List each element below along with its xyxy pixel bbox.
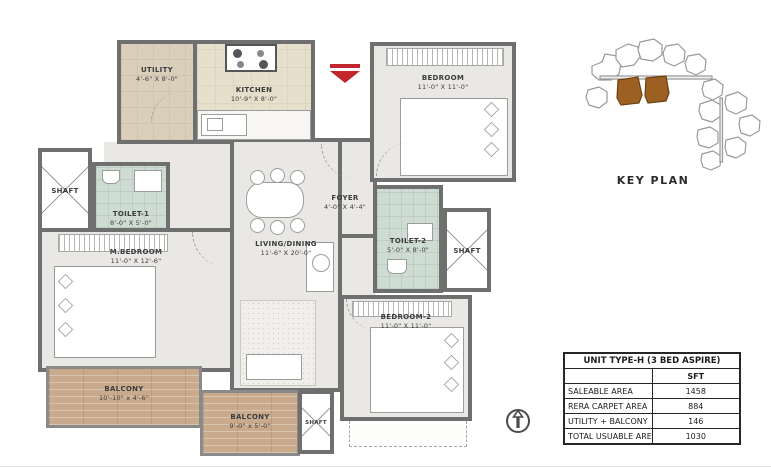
room-foyer-label: FOYER bbox=[317, 194, 373, 203]
sofa-icon bbox=[246, 354, 302, 380]
door-arc-icon bbox=[376, 142, 411, 176]
shaft-bottom-label: SHAFT bbox=[302, 420, 330, 427]
stove-icon bbox=[225, 44, 277, 72]
room-utility: UTILITY 4'-6" X 8'-0" bbox=[117, 40, 197, 144]
corridor bbox=[342, 238, 376, 298]
key-plan-map bbox=[580, 32, 770, 172]
room-toilet-2-label: TOILET-2 bbox=[377, 237, 439, 246]
area-row-value: 1458 bbox=[652, 384, 740, 399]
room-utility-dims: 4'-6" X 8'-0" bbox=[121, 75, 193, 83]
shaft-right: SHAFT bbox=[443, 208, 491, 292]
dining-table-icon bbox=[246, 182, 304, 218]
north-indicator-icon bbox=[503, 406, 533, 436]
corridor bbox=[168, 164, 232, 232]
room-toilet-1-dims: 8'-0" X 5'-0" bbox=[96, 219, 166, 227]
area-row-label: UTILITY + BALCONY bbox=[564, 414, 652, 429]
floor-plan-page: UTILITY 4'-6" X 8'-0" KITCHEN 10'-9" X 8… bbox=[0, 0, 771, 467]
entry-arrow-icon bbox=[330, 64, 360, 68]
dining-chair-icon bbox=[290, 218, 305, 233]
area-row-value: 884 bbox=[652, 399, 740, 414]
area-row-value: 1030 bbox=[652, 429, 740, 445]
dining-chair-icon bbox=[250, 170, 265, 185]
room-toilet-1-label: TOILET-1 bbox=[96, 210, 166, 219]
table-row: UTILITY + BALCONY 146 bbox=[564, 414, 740, 429]
room-balcony-2: BALCONY 9'-0" x 5'-0" bbox=[200, 390, 300, 456]
table-row: RERA CARPET AREA 884 bbox=[564, 399, 740, 414]
room-living-dining: LIVING/DINING 11'-6" X 20'-0" bbox=[230, 138, 342, 392]
room-balcony-2-dims: 9'-0" x 5'-0" bbox=[203, 422, 297, 430]
door-arc-icon bbox=[151, 92, 182, 122]
area-table-blank-cell bbox=[564, 369, 652, 384]
wc-icon bbox=[387, 259, 407, 274]
room-balcony-2-label: BALCONY bbox=[203, 413, 297, 422]
room-toilet-2: TOILET-2 5'-0" X 8'-0" bbox=[373, 185, 443, 293]
room-bedroom-label: BEDROOM bbox=[374, 74, 512, 83]
entry-arrow-head-icon bbox=[330, 71, 360, 83]
room-bedroom-dims: 11'-0" X 11'-0" bbox=[374, 83, 512, 91]
room-foyer-dims: 4'-0" X 4'-4" bbox=[317, 203, 373, 211]
room-balcony-1-label: BALCONY bbox=[49, 385, 199, 394]
shaft-left: SHAFT bbox=[38, 148, 92, 232]
area-row-value: 146 bbox=[652, 414, 740, 429]
shaft-right-label: SHAFT bbox=[447, 247, 487, 256]
toilet-vanity bbox=[134, 170, 162, 192]
area-row-label: TOTAL USUABLE AREA (B+C) bbox=[564, 429, 652, 445]
dining-chair-icon bbox=[250, 218, 265, 233]
room-bedroom-2-label: BEDROOM-2 bbox=[344, 313, 468, 322]
room-bedroom-2-dims: 11'-0" X 11'-0" bbox=[344, 322, 468, 330]
dining-chair-icon bbox=[270, 220, 285, 235]
area-table: UNIT TYPE-H (3 BED ASPIRE) SFT SALEABLE … bbox=[563, 352, 741, 445]
area-table-title: UNIT TYPE-H (3 BED ASPIRE) bbox=[564, 353, 740, 369]
room-kitchen-label: KITCHEN bbox=[197, 86, 311, 95]
room-m-bedroom: M.BEDROOM 11'-0" X 12'-6" bbox=[38, 228, 234, 372]
room-living-dining-dims: 11'-6" X 20'-0" bbox=[234, 249, 338, 257]
room-kitchen-dims: 10'-9" X 8'-0" bbox=[197, 95, 311, 103]
kitchen-sink-basin bbox=[207, 118, 223, 131]
room-m-bedroom-dims: 11'-0" X 12'-6" bbox=[42, 257, 230, 265]
room-m-bedroom-label: M.BEDROOM bbox=[42, 248, 230, 257]
shaft-bottom: SHAFT bbox=[298, 390, 334, 454]
room-utility-label: UTILITY bbox=[121, 66, 193, 75]
table-row: SALEABLE AREA 1458 bbox=[564, 384, 740, 399]
wc-icon bbox=[102, 170, 120, 184]
room-bedroom: BEDROOM 11'-0" X 11'-0" bbox=[370, 42, 516, 182]
dining-chair-icon bbox=[270, 168, 285, 183]
table-row: TOTAL USUABLE AREA (B+C) 1030 bbox=[564, 429, 740, 445]
room-bedroom-2: BEDROOM-2 11'-0" X 11'-0" bbox=[340, 295, 472, 421]
room-living-dining-label: LIVING/DINING bbox=[234, 240, 338, 249]
wardrobe-icon bbox=[386, 48, 504, 66]
room-balcony-1-dims: 10'-10" x 4'-6" bbox=[49, 394, 199, 402]
room-balcony-1: BALCONY 10'-10" x 4'-6" bbox=[46, 366, 202, 428]
key-plan-label: KEY PLAN bbox=[598, 174, 708, 187]
open-deck-outline bbox=[349, 421, 467, 447]
area-row-label: SALEABLE AREA bbox=[564, 384, 652, 399]
dining-chair-icon bbox=[290, 170, 305, 185]
room-toilet-2-dims: 5'-0" X 8'-0" bbox=[377, 246, 439, 254]
shaft-left-label: SHAFT bbox=[42, 187, 88, 196]
area-row-label: RERA CARPET AREA bbox=[564, 399, 652, 414]
area-table-unit-header: SFT bbox=[652, 369, 740, 384]
